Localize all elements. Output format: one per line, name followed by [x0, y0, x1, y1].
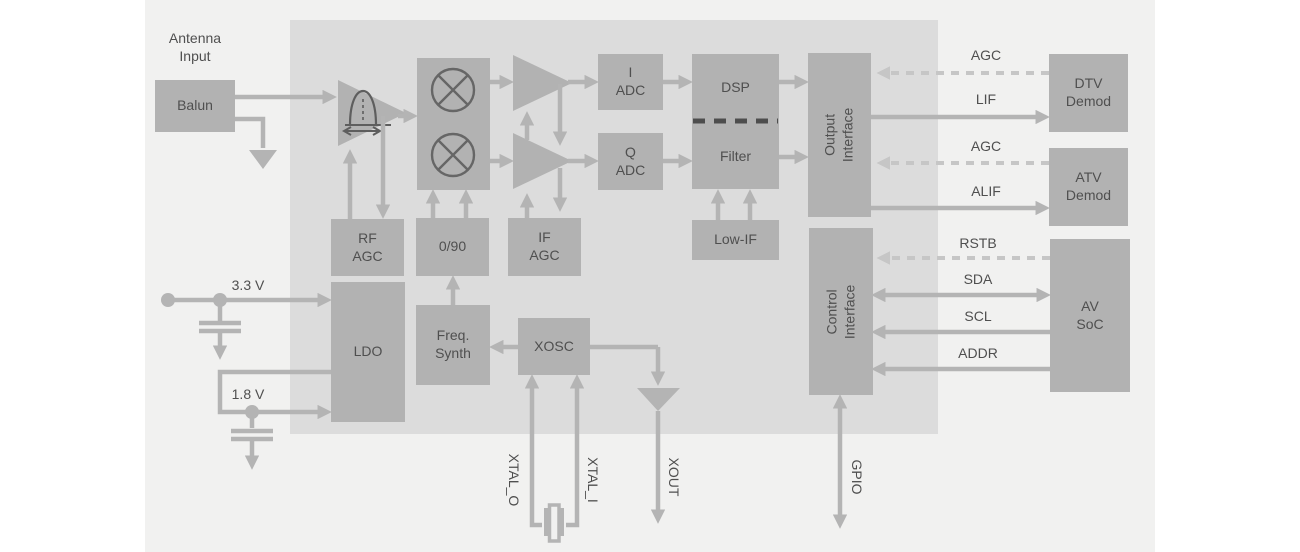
agc-dtv-label: AGC — [950, 47, 1022, 65]
av-soc-block: AV SoC — [1050, 239, 1130, 392]
rf-agc-block: RF AGC — [331, 219, 404, 276]
mixer-block — [417, 58, 490, 190]
xout-label: XOUT — [666, 458, 682, 497]
dsp-filter-block — [692, 54, 779, 189]
output-interface-block: Output Interface — [808, 53, 871, 217]
low-if-block: Low-IF — [692, 220, 779, 260]
tuner-block-diagram: Balun I ADC Q ADC DSP Filter Output Inte… — [0, 0, 1300, 552]
v18-label: 1.8 V — [220, 386, 276, 404]
alif-label: ALIF — [950, 183, 1022, 201]
atv-demod-block: ATV Demod — [1049, 148, 1128, 226]
agc-atv-label: AGC — [950, 138, 1022, 156]
dtv-demod-block: DTV Demod — [1049, 54, 1128, 132]
lif-label: LIF — [950, 91, 1022, 109]
filter-label: Filter — [692, 148, 779, 166]
phase-0-90-block: 0/90 — [416, 218, 489, 276]
v33-label: 3.3 V — [220, 277, 276, 295]
sda-label: SDA — [942, 271, 1014, 289]
adc-i-block: I ADC — [598, 54, 663, 110]
antenna-input-label: Antenna Input — [145, 30, 245, 66]
pga-q-label: PGA — [515, 152, 561, 170]
xtal-i-label: XTAL_I — [585, 457, 601, 503]
scl-label: SCL — [942, 308, 1014, 326]
rstb-label: RSTB — [942, 235, 1014, 253]
freq-synth-block: Freq. Synth — [416, 305, 490, 385]
xtal-o-label: XTAL_O — [506, 454, 522, 507]
pga-i-label: PGA — [515, 74, 561, 92]
adc-q-block: Q ADC — [598, 133, 663, 190]
gpio-label: GPIO — [849, 459, 865, 494]
dsp-label: DSP — [692, 79, 779, 97]
balun-block: Balun — [155, 80, 235, 132]
addr-label: ADDR — [942, 345, 1014, 363]
ldo-block: LDO — [331, 282, 405, 422]
xosc-block: XOSC — [518, 318, 590, 375]
if-agc-block: IF AGC — [508, 218, 581, 276]
control-interface-block: Control Interface — [809, 228, 873, 395]
